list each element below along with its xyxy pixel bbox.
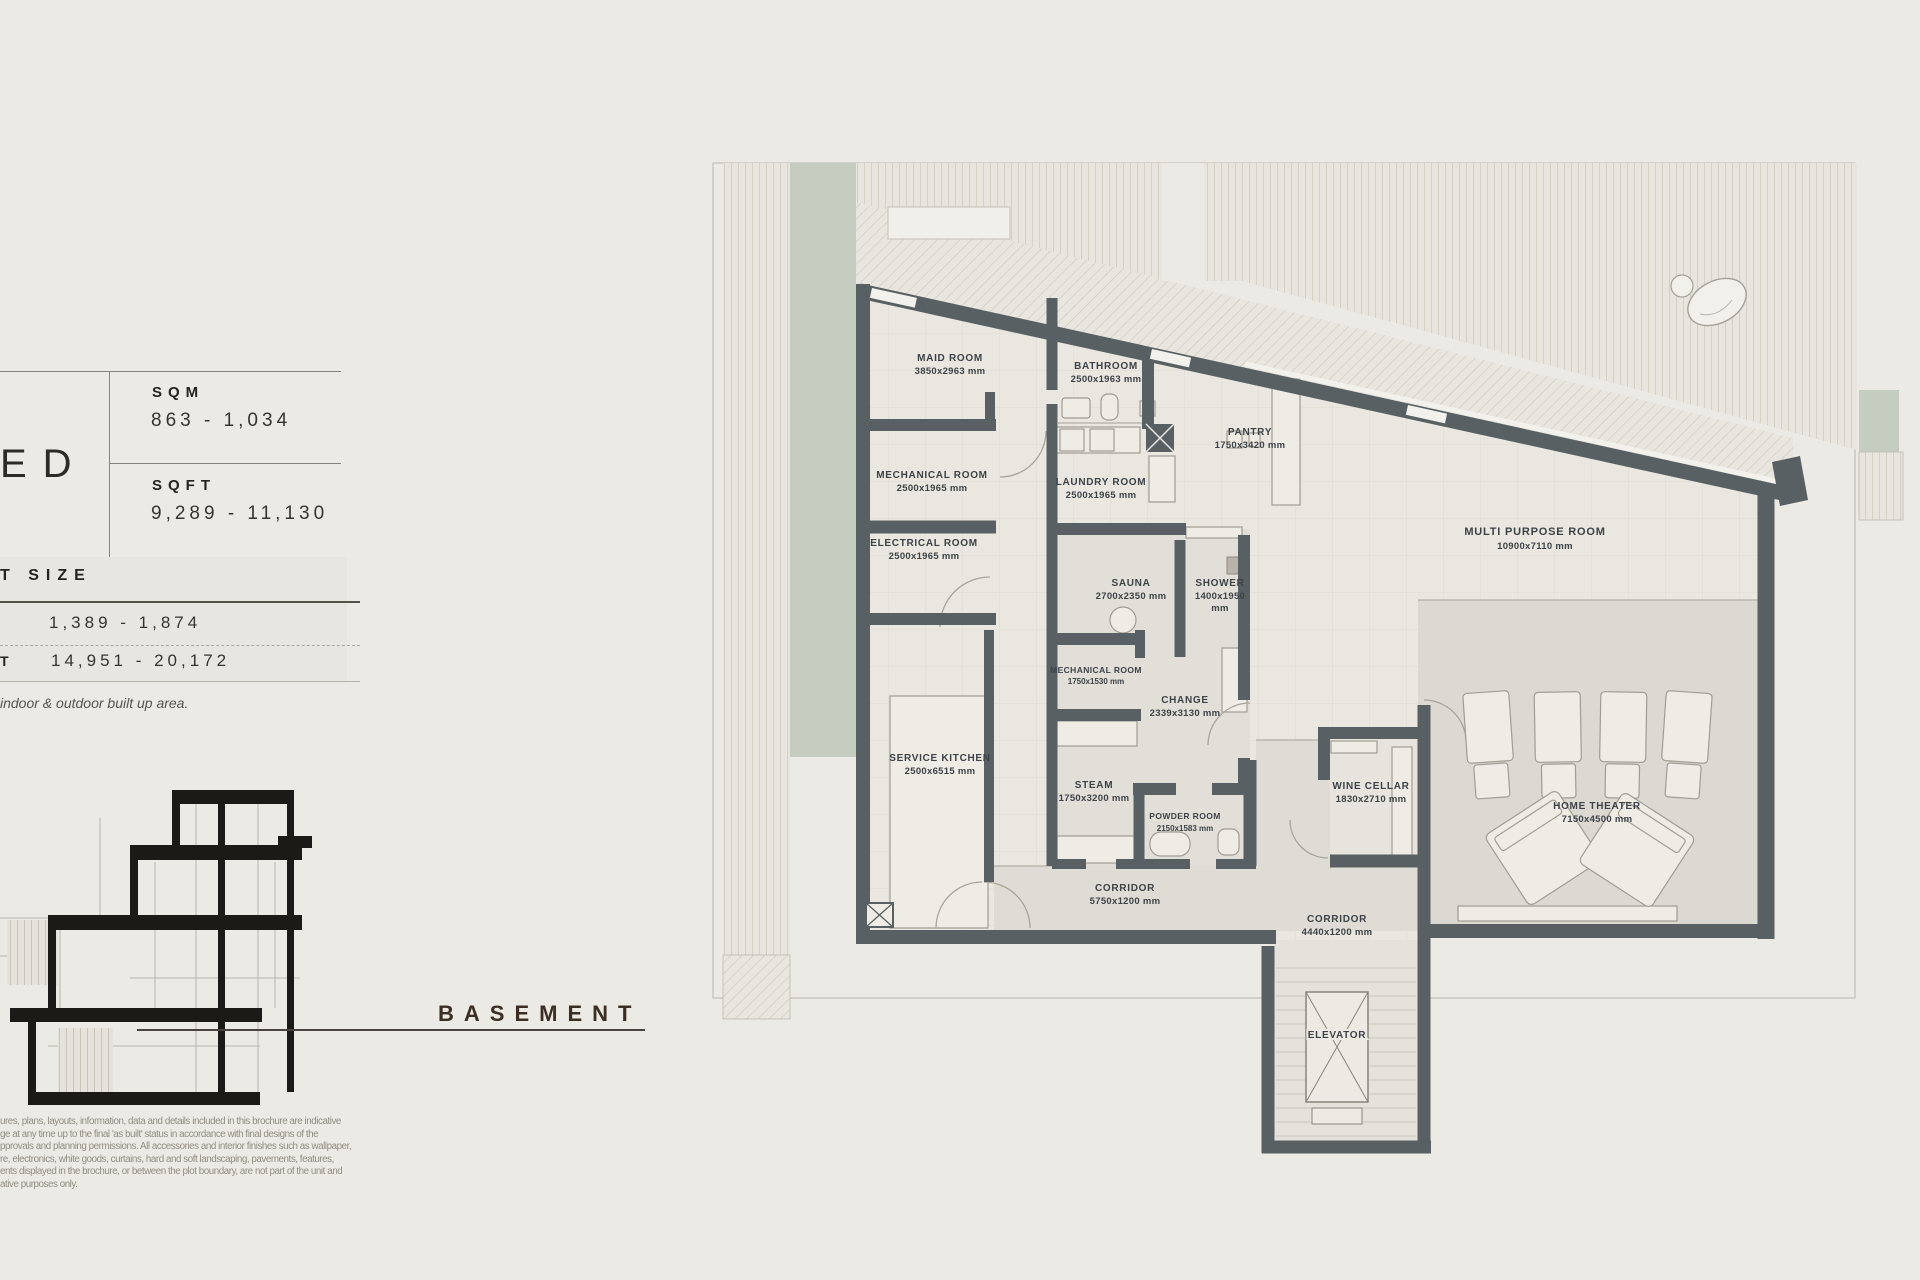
media-console	[1458, 906, 1677, 921]
svg-text:MAID ROOM: MAID ROOM	[917, 353, 983, 364]
powder-sink-icon	[1150, 832, 1190, 856]
svg-text:PANTRY: PANTRY	[1228, 427, 1272, 438]
dryer-icon	[1090, 429, 1114, 451]
svg-text:SHOWER: SHOWER	[1195, 578, 1244, 589]
svg-text:2339x3130 mm: 2339x3130 mm	[1150, 708, 1221, 719]
corner-shaft	[866, 903, 893, 927]
svg-text:CORRIDOR: CORRIDOR	[1307, 914, 1367, 925]
section-diagram	[0, 778, 340, 1113]
section-structure	[10, 790, 312, 1105]
bench	[1186, 527, 1242, 538]
svg-text:7150x4500 mm: 7150x4500 mm	[1562, 814, 1633, 825]
svg-text:POWDER ROOM: POWDER ROOM	[1149, 811, 1220, 821]
svg-text:CORRIDOR: CORRIDOR	[1095, 883, 1155, 894]
area-note: indoor & outdoor built up area.	[0, 695, 188, 711]
disclaimer-line: ents displayed in the brochure, or betwe…	[0, 1166, 351, 1179]
svg-text:1830x2710 mm: 1830x2710 mm	[1336, 794, 1407, 805]
svg-text:mm: mm	[1211, 603, 1229, 614]
section-terrain-hatch-lower	[58, 1028, 113, 1092]
svg-text:ELEVATOR: ELEVATOR	[1308, 1030, 1366, 1041]
table-border-top	[0, 371, 341, 372]
svg-text:MECHANICAL ROOM: MECHANICAL ROOM	[1050, 665, 1142, 675]
planter-box	[888, 207, 1010, 239]
svg-text:5750x1200 mm: 5750x1200 mm	[1090, 896, 1161, 907]
svg-text:1750x3420 mm: 1750x3420 mm	[1215, 440, 1286, 451]
sauna-stove-icon	[1110, 607, 1136, 633]
svg-text:2500x1963 mm: 2500x1963 mm	[1071, 374, 1142, 385]
plot-sqm-value: 1,389 - 1,874	[49, 613, 201, 633]
deck-band-left	[723, 163, 790, 955]
washer-icon	[1060, 429, 1084, 451]
svg-text:2500x6515 mm: 2500x6515 mm	[905, 766, 976, 777]
sink-icon	[1062, 398, 1090, 418]
svg-text:2500x1965 mm: 2500x1965 mm	[897, 483, 968, 494]
appliance-icon	[1149, 456, 1175, 502]
powder-toilet-icon	[1218, 829, 1239, 855]
unit-type-label: ED	[0, 442, 88, 487]
disclaimer-line: ge at any time up to the final 'as built…	[0, 1129, 351, 1142]
svg-text:1750x1530 mm: 1750x1530 mm	[1068, 677, 1125, 686]
plot-size-bottom-rule	[0, 681, 360, 682]
disclaimer-line: ative purposes only.	[0, 1179, 351, 1192]
steam-bench	[1057, 721, 1137, 746]
svg-text:HOME THEATER: HOME THEATER	[1553, 801, 1641, 812]
green-box-right	[1859, 390, 1899, 452]
sqft-label: SQFT	[152, 477, 216, 494]
path-gap	[1162, 163, 1204, 281]
svg-text:1400x1950: 1400x1950	[1195, 591, 1245, 602]
svg-text:2500x1965 mm: 2500x1965 mm	[1066, 490, 1137, 501]
wine-rack	[1331, 741, 1377, 753]
disclaimer: ures, plans, layouts, information, data …	[0, 1116, 351, 1191]
floor-title: BASEMENT	[438, 1001, 641, 1027]
svg-text:SAUNA: SAUNA	[1111, 578, 1150, 589]
svg-text:2500x1965 mm: 2500x1965 mm	[889, 551, 960, 562]
plot-sqft-value: 14,951 - 20,172	[51, 651, 230, 671]
table-border-mid	[109, 463, 341, 464]
sqm-label: SQM	[152, 384, 204, 401]
disclaimer-line: ures, plans, layouts, information, data …	[0, 1116, 351, 1129]
svg-text:CHANGE: CHANGE	[1161, 695, 1209, 706]
svg-text:SERVICE KITCHEN: SERVICE KITCHEN	[889, 753, 990, 764]
disclaimer-line: re, electronics, white goods, curtains, …	[0, 1154, 351, 1167]
plot-size-rule	[0, 601, 360, 603]
green-band-left	[790, 163, 856, 757]
svg-text:STEAM: STEAM	[1075, 780, 1114, 791]
duct-shaft	[1146, 424, 1174, 452]
svg-text:BATHROOM: BATHROOM	[1074, 361, 1138, 372]
svg-text:2700x2350 mm: 2700x2350 mm	[1096, 591, 1167, 602]
svg-text:1750x3200 mm: 1750x3200 mm	[1059, 793, 1130, 804]
svg-text:LAUNDRY ROOM: LAUNDRY ROOM	[1056, 477, 1147, 488]
svg-text:3850x2963 mm: 3850x2963 mm	[915, 366, 986, 377]
svg-text:10900x7110 mm: 10900x7110 mm	[1497, 541, 1573, 552]
plot-size-divider	[0, 645, 360, 646]
room-label-elevator: ELEVATOR	[1308, 1030, 1366, 1041]
floor-plan: MAID ROOM 3850x2963 mm BATHROOM 2500x196…	[700, 150, 1920, 1280]
svg-text:2150x1583 mm: 2150x1583 mm	[1157, 824, 1214, 833]
svg-text:ELECTRICAL ROOM: ELECTRICAL ROOM	[870, 538, 978, 549]
feature-box-left	[723, 955, 790, 1019]
kitchen-island	[890, 696, 988, 928]
sqm-value: 863 - 1,034	[151, 410, 291, 432]
steam-bench	[1057, 836, 1135, 863]
sqft-value: 9,289 - 11,130	[151, 503, 328, 525]
svg-text:4440x1200 mm: 4440x1200 mm	[1302, 927, 1373, 938]
svg-text:MULTI PURPOSE ROOM: MULTI PURPOSE ROOM	[1464, 526, 1605, 538]
plot-size-header: T SIZE	[0, 567, 92, 585]
disclaimer-line: pprovals and planning permissions. All a…	[0, 1141, 351, 1154]
brochure-page: ED SQM 863 - 1,034 SQFT 9,289 - 11,130 T…	[0, 0, 1920, 1280]
svg-text:WINE CELLAR: WINE CELLAR	[1332, 781, 1409, 792]
table-border-vertical	[109, 371, 110, 557]
svg-text:MECHANICAL ROOM: MECHANICAL ROOM	[876, 470, 987, 481]
toilet-icon	[1101, 394, 1118, 420]
basement-pointer-line	[137, 1029, 645, 1031]
deck-box-right	[1859, 452, 1903, 520]
plot-sqft-label: T	[0, 653, 13, 669]
